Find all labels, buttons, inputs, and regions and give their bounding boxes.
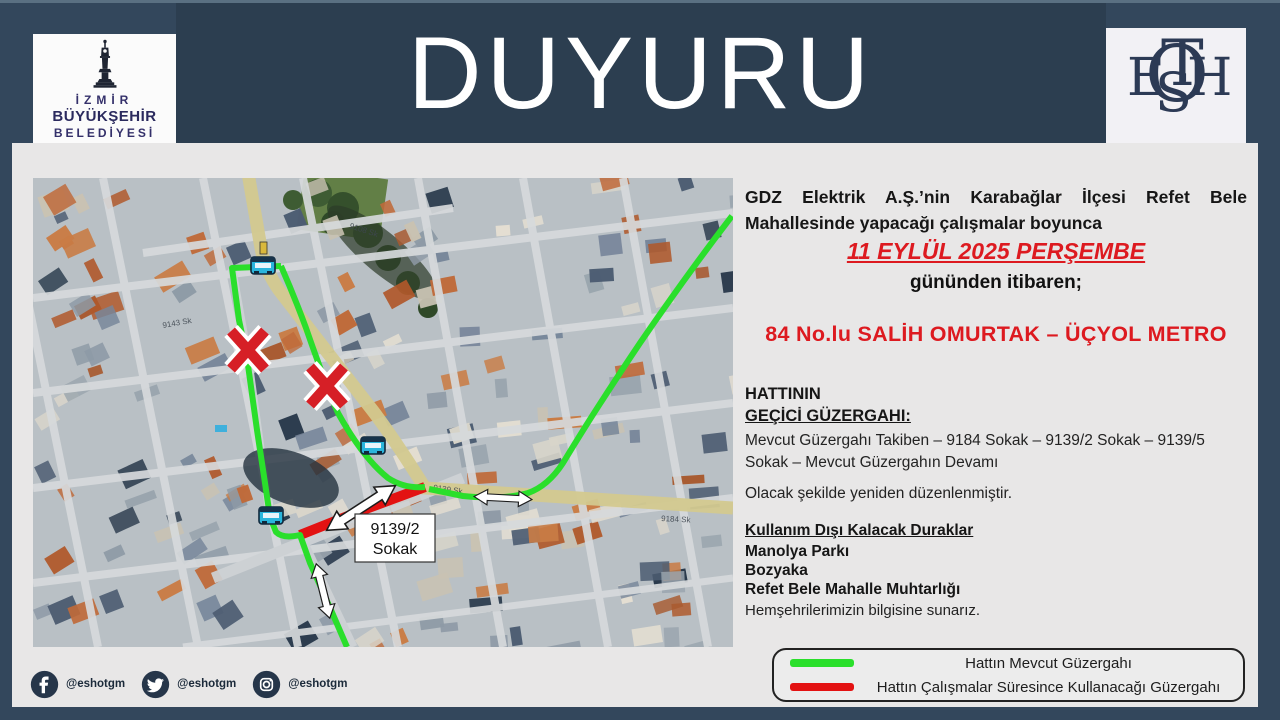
facebook-icon xyxy=(30,670,59,699)
street-name: 9184 Sk xyxy=(661,514,692,525)
eshot-logo: O E T S H xyxy=(1106,28,1246,143)
callout-line1: 9139/2 xyxy=(371,521,420,538)
social-handle: @eshotgm xyxy=(66,678,125,690)
eshot-monogram-icon: O E T S H xyxy=(1131,36,1221,131)
satellite-map-image: 9143 Sk 9108 Sk 9139 Sk 9184 Sk xyxy=(33,178,733,647)
izmir-logo-line3: BELEDİYESİ xyxy=(54,126,155,140)
closed-stops-list: Manolya Parkı Bozyaka Refet Bele Mahalle… xyxy=(745,542,1247,599)
page-title: DUYURU xyxy=(408,22,874,124)
works-route-swatch xyxy=(790,683,854,691)
instagram-account: @eshotgm xyxy=(252,670,347,699)
twitter-icon xyxy=(141,670,170,699)
bus-stop-icon xyxy=(361,437,385,454)
route-name: 84 No.lu SALİH OMURTAK – ÜÇYOL METRO xyxy=(745,322,1247,347)
arrangement-note: Olacak şekilde yeniden düzenlenmiştir. xyxy=(745,485,1247,503)
announcement-text: GDZ Elektrik A.Ş.’nin Karabağlar İlçesi … xyxy=(745,178,1247,648)
closed-stop: Manolya Parkı xyxy=(745,542,1247,561)
legend-row-works: Hattın Çalışmalar Süresince Kullanacağı … xyxy=(774,677,1243,697)
izmir-logo-line2: BÜYÜKŞEHİR xyxy=(52,108,156,125)
izmir-logo-line1: İZMİR xyxy=(76,93,134,107)
izmir-municipality-logo: İZMİR BÜYÜKŞEHİR BELEDİYESİ xyxy=(33,34,176,143)
announcement-poster: DUYURU İZMİR BÜYÜKŞEHİR BELEDİYESİ xyxy=(0,0,1280,720)
closed-stop: Bozyaka xyxy=(745,561,1247,580)
social-handle: @eshotgm xyxy=(288,678,347,690)
closing-note: Hemşehrilerimizin bilgisine sunarız. xyxy=(745,602,1247,619)
title-banner: DUYURU xyxy=(176,3,1106,143)
facebook-account: @eshotgm xyxy=(30,670,125,699)
effective-date: 11 EYLÜL 2025 PERŞEMBE xyxy=(745,238,1247,265)
date-suffix: gününden itibaren; xyxy=(745,272,1247,294)
route-label-1: HATTININ xyxy=(745,385,1247,404)
map-legend: Hattın Mevcut Güzergahı Hattın Çalışmala… xyxy=(772,648,1245,702)
twitter-account: @eshotgm xyxy=(141,670,236,699)
legend-row-current: Hattın Mevcut Güzergahı xyxy=(774,653,1243,673)
pool xyxy=(215,425,227,432)
bus-stop-icon xyxy=(251,257,275,274)
bus-stop-icon xyxy=(259,507,283,524)
social-media-row: @eshotgm @eshotgm @eshotgm xyxy=(30,664,347,704)
monogram-letter: H xyxy=(1187,52,1232,104)
closed-stops-title: Kullanım Dışı Kalacak Duraklar xyxy=(745,522,1247,540)
legend-label: Hattın Mevcut Güzergahı xyxy=(854,655,1243,672)
clock-tower-icon xyxy=(77,38,133,92)
closed-stop: Refet Bele Mahalle Muhtarlığı xyxy=(745,580,1247,599)
callout-line2: Sokak xyxy=(373,541,418,558)
route-map: 9143 Sk 9108 Sk 9139 Sk 9184 Sk xyxy=(33,178,733,647)
temporary-route-description: Mevcut Güzergahı Takiben – 9184 Sokak – … xyxy=(745,430,1247,475)
street-label-callout: 9139/2 Sokak xyxy=(355,514,435,562)
current-route-swatch xyxy=(790,659,854,667)
legend-label: Hattın Çalışmalar Süresince Kullanacağı … xyxy=(854,679,1243,696)
intro-paragraph: GDZ Elektrik A.Ş.’nin Karabağlar İlçesi … xyxy=(745,184,1247,237)
route-label-2: GEÇİCİ GÜZERGAHI: xyxy=(745,407,1247,426)
social-handle: @eshotgm xyxy=(177,678,236,690)
instagram-icon xyxy=(252,670,281,699)
